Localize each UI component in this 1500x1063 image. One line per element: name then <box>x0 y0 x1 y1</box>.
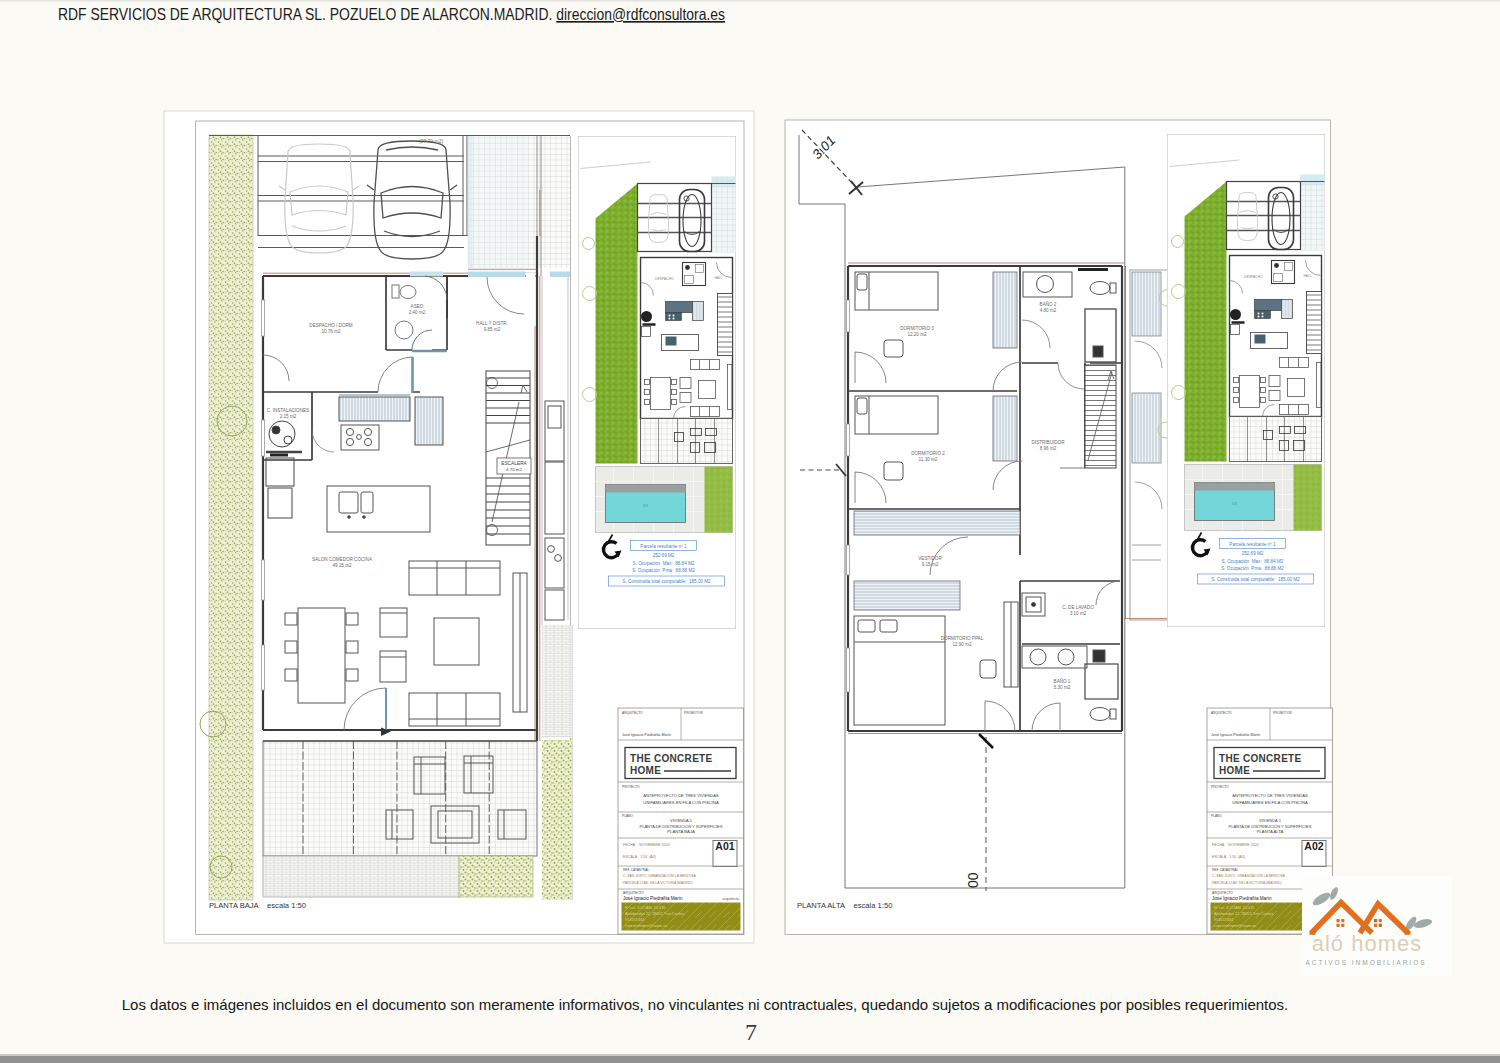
svg-text:ASEO: ASEO <box>411 304 424 309</box>
svg-text:49.15 m2: 49.15 m2 <box>332 563 352 568</box>
svg-text:8.96 m2: 8.96 m2 <box>1040 446 1057 451</box>
svg-text:DESPACHO / DORM: DESPACHO / DORM <box>309 323 352 328</box>
svg-text:BAÑO 2: BAÑO 2 <box>1040 301 1057 307</box>
svg-text:A02: A02 <box>1304 840 1323 852</box>
svg-text:12.20 m2: 12.20 m2 <box>907 332 927 337</box>
svg-text:RDF SERVICIOS DE ARQUITECTURA: RDF SERVICIOS DE ARQUITECTURA SL. POZUEL… <box>58 5 725 23</box>
svg-text:A01: A01 <box>715 840 734 852</box>
svg-text:DISTRIBUIDOR: DISTRIBUIDOR <box>1032 440 1066 445</box>
svg-text:ACTIVOS INMOBILIARIOS: ACTIVOS INMOBILIARIOS <box>1305 959 1426 966</box>
svg-text:9.15 m2: 9.15 m2 <box>922 562 939 567</box>
svg-text:2.15 m2: 2.15 m2 <box>280 414 297 419</box>
svg-text:PLANTA ALTA: PLANTA ALTA <box>1257 829 1284 834</box>
svg-text:3.10 m2: 3.10 m2 <box>1070 611 1087 616</box>
svg-text:2.40 m2: 2.40 m2 <box>409 310 426 315</box>
svg-text:PLANTA BAJA escala 1:50: PLANTA BAJA escala 1:50 <box>209 901 306 910</box>
svg-text:9.85 m2: 9.85 m2 <box>484 327 501 332</box>
svg-text:4.70 m2: 4.70 m2 <box>506 467 522 472</box>
svg-text:PLANTA BAJA: PLANTA BAJA <box>667 829 695 834</box>
svg-text:11.30 m2: 11.30 m2 <box>919 457 938 462</box>
svg-text:00: 00 <box>965 872 981 888</box>
svg-text:Los datos e imágenes incluidos: Los datos e imágenes incluidos en el doc… <box>122 996 1289 1013</box>
svg-text:HALL Y DISTR.: HALL Y DISTR. <box>476 321 508 326</box>
svg-text:BAÑO 1: BAÑO 1 <box>1054 678 1071 684</box>
svg-text:4.80 m2: 4.80 m2 <box>1040 308 1057 313</box>
svg-text:10.76 m2: 10.76 m2 <box>321 329 341 334</box>
svg-text:C. INSTALACIONES: C. INSTALACIONES <box>267 408 309 413</box>
svg-text:DORMITORIO PPAL: DORMITORIO PPAL <box>941 636 984 641</box>
svg-text:7: 7 <box>745 1019 757 1045</box>
svg-text:PLANTA ALTA escala 1:50: PLANTA ALTA escala 1:50 <box>797 901 892 910</box>
svg-text:DORMITORIO 3: DORMITORIO 3 <box>900 326 934 331</box>
svg-text:DORMITORIO 2: DORMITORIO 2 <box>911 451 945 456</box>
svg-text:SALON COMEDOR COCINA: SALON COMEDOR COCINA <box>312 557 373 562</box>
svg-text:ESCALERA: ESCALERA <box>501 461 527 466</box>
svg-text:VESTIDOR: VESTIDOR <box>918 556 942 561</box>
svg-text:aló homes: aló homes <box>1312 931 1423 956</box>
svg-text:12.90 m2: 12.90 m2 <box>952 642 972 647</box>
svg-text:5.30 m2: 5.30 m2 <box>1054 685 1071 690</box>
svg-text:C. DE LAVADO: C. DE LAVADO <box>1062 605 1094 610</box>
